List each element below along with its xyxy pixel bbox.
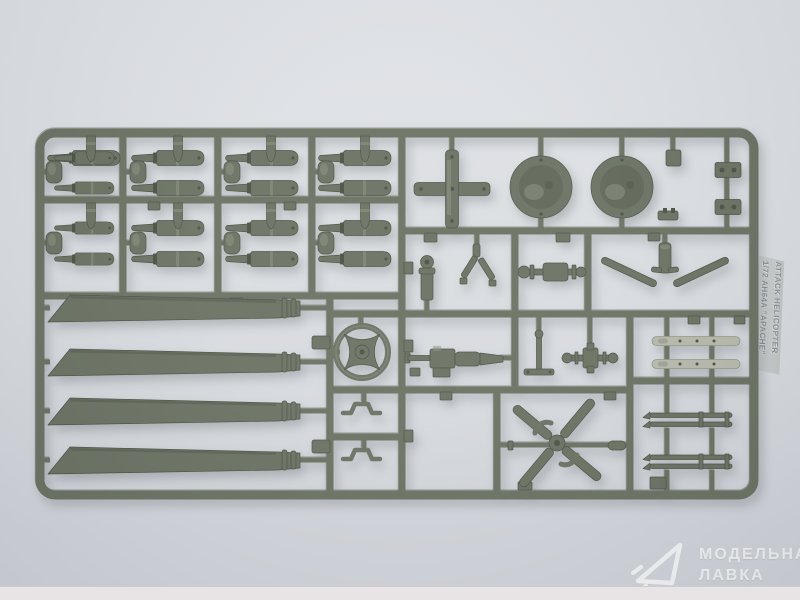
launch-rail-part bbox=[652, 337, 740, 346]
gear-leg-part bbox=[666, 243, 729, 287]
rotor-blade-part bbox=[48, 398, 300, 425]
crank-part bbox=[343, 404, 380, 413]
bracket-part bbox=[715, 200, 741, 215]
cross-frame-part bbox=[414, 150, 490, 228]
small-greeble-part bbox=[658, 208, 678, 220]
landing-gear-parts bbox=[600, 243, 729, 288]
crank-parts bbox=[343, 404, 380, 459]
round-cap-part bbox=[318, 161, 334, 183]
rod-parts bbox=[643, 412, 732, 470]
round-cap-part bbox=[318, 232, 334, 254]
rotor-hub-ring-part bbox=[327, 317, 398, 388]
watermark-line2: ЛАВКА bbox=[699, 566, 800, 587]
molding-tabs bbox=[96, 202, 745, 490]
crank-part bbox=[343, 450, 380, 459]
rotor-blade-part bbox=[48, 447, 300, 474]
round-cap-part bbox=[130, 161, 146, 183]
rotor-blade-parts bbox=[48, 295, 330, 474]
rotor-head-part bbox=[562, 343, 618, 373]
round-cap-part bbox=[46, 161, 62, 183]
small-block-part bbox=[312, 440, 330, 453]
dome-parts bbox=[510, 156, 653, 218]
watermark-line1: МОДЕЛЬНАЯ bbox=[699, 545, 800, 566]
warhead-part bbox=[361, 203, 370, 229]
small-block-part bbox=[312, 336, 330, 349]
tail-rotor-blade bbox=[518, 446, 556, 489]
axle-part bbox=[518, 263, 586, 281]
missile-part-small bbox=[54, 182, 113, 194]
round-cap-part bbox=[46, 232, 62, 254]
claw-part bbox=[460, 244, 496, 286]
missile-part-small bbox=[54, 152, 113, 164]
photo-scene: 1/72 AH64A "APACHE" ATTACK HELICOPTER bbox=[0, 0, 800, 600]
eye-cylinder-part bbox=[419, 256, 435, 301]
dome-part bbox=[510, 156, 572, 218]
warhead-part bbox=[174, 203, 183, 229]
warhead-part bbox=[361, 136, 370, 162]
t-lever-part bbox=[524, 330, 554, 375]
dome-part bbox=[591, 156, 653, 218]
round-cap-part bbox=[224, 161, 240, 183]
warhead-part bbox=[87, 136, 96, 162]
table-edge-strip bbox=[0, 586, 800, 600]
chain-gun-part bbox=[405, 346, 503, 377]
gear-leg-part bbox=[600, 243, 663, 287]
watermark-text: МОДЕЛЬНАЯ ЛАВКА bbox=[699, 545, 800, 587]
round-cap-part bbox=[130, 232, 146, 254]
warhead-part bbox=[174, 136, 183, 162]
rotor-blade-part bbox=[48, 349, 300, 376]
rod-pair bbox=[643, 454, 732, 470]
missile-part-small bbox=[54, 222, 113, 234]
warhead-part bbox=[267, 203, 276, 229]
warhead-part bbox=[87, 203, 96, 229]
small-block-part bbox=[666, 150, 681, 166]
warhead-part bbox=[267, 136, 276, 162]
missile-part-small bbox=[54, 253, 113, 265]
bracket-part bbox=[715, 163, 741, 178]
launch-rail-part bbox=[652, 360, 740, 369]
sprue-frame bbox=[0, 0, 800, 600]
round-cap-part bbox=[224, 232, 240, 254]
rod-pair bbox=[643, 412, 732, 428]
tail-rotor-blade bbox=[559, 397, 597, 440]
